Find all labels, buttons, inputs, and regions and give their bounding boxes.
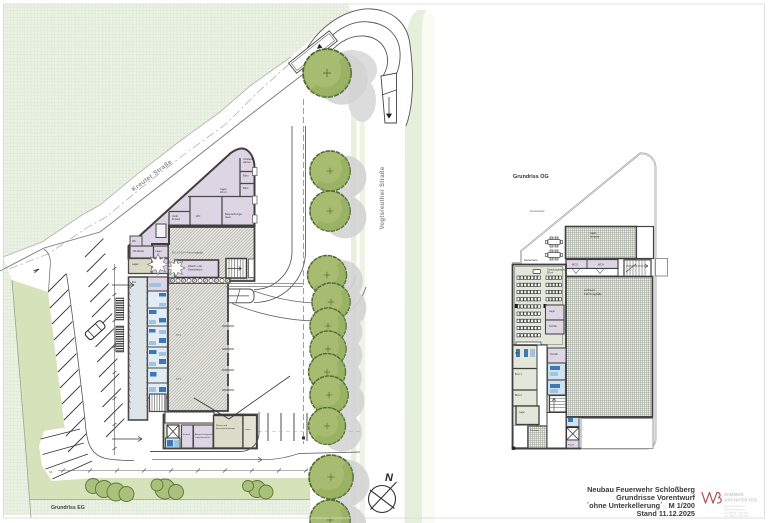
svg-text:WC: WC: [515, 353, 519, 355]
svg-text:16: 16: [49, 470, 53, 474]
svg-text:Büro 2: Büro 2: [515, 394, 522, 397]
svg-text:EG ± 0.00 = Fahrzeughalle: EG ± 0.00 = Fahrzeughalle: [172, 251, 204, 255]
svg-text:Frauen: Frauen: [172, 217, 181, 221]
svg-text:Vogtsreuther Straße: Vogtsreuther Straße: [380, 166, 386, 229]
svg-text:WC H: WC H: [598, 265, 604, 267]
svg-text:Fahrzeughalle: Fahrzeughalle: [584, 292, 602, 296]
svg-text:Stand 11.12.2025: Stand 11.12.2025: [637, 509, 695, 518]
svg-text:ST 2: ST 2: [176, 334, 182, 337]
svg-text:ST 3: ST 3: [176, 378, 182, 381]
svg-text:Lager: Lager: [245, 428, 251, 431]
svg-text:Tel. 08031 / 234 567: Tel. 08031 / 234 567: [724, 511, 749, 515]
svg-text:Lager: Lager: [519, 411, 525, 414]
svg-text:Büro 1: Büro 1: [515, 373, 522, 376]
svg-text:ST 1: ST 1: [176, 308, 182, 311]
svg-text:Büro: Büro: [243, 174, 249, 178]
svg-text:Besucherfahrzeuge: Besucherfahrzeuge: [216, 427, 236, 430]
svg-text:Sonnenschutz: Sonnenschutz: [530, 210, 545, 213]
svg-text:Herren: Herren: [243, 160, 251, 164]
svg-text:Gartenstrasse 24: Gartenstrasse 24: [724, 504, 745, 508]
svg-text:WC: WC: [196, 214, 200, 218]
svg-text:Lager: Lager: [549, 310, 555, 313]
svg-text:Logistikzentrum: Logistikzentrum: [195, 436, 210, 439]
svg-text:Desinfektion: Desinfektion: [188, 268, 203, 272]
svg-text:Flur: Flur: [132, 281, 136, 284]
svg-text:Technik: Technik: [183, 434, 191, 436]
svg-text:95 m²: 95 m²: [547, 272, 553, 275]
svg-text:WC D: WC D: [572, 265, 578, 267]
svg-text:WC: WC: [132, 240, 136, 243]
svg-text:Technik: Technik: [549, 326, 558, 328]
svg-text:Dachterrasse: Dachterrasse: [524, 259, 538, 262]
svg-text:Wasch- und: Wasch- und: [188, 264, 202, 268]
svg-text:ARCHITEKTEN: ARCHITEKTEN: [724, 498, 758, 503]
svg-text:Florian und: Florian und: [216, 424, 228, 427]
svg-text:Lager: Lager: [156, 250, 162, 253]
svg-text:Werkstatt: Werkstatt: [133, 249, 144, 253]
svg-text:raum: raum: [225, 215, 231, 219]
svg-text:Lager: Lager: [132, 262, 139, 266]
svg-text:Grundriss OG: Grundriss OG: [513, 174, 549, 180]
svg-text:WIMMER: WIMMER: [724, 492, 744, 497]
svg-text:Atemschutzgeräte-: Atemschutzgeräte-: [195, 433, 214, 436]
svg-text:83024 Rosenheim: 83024 Rosenheim: [724, 507, 747, 511]
svg-text:Technik: Technik: [550, 354, 559, 356]
svg-text:Dachterr.: Dachterr.: [530, 429, 539, 432]
svg-text:N: N: [385, 472, 394, 484]
svg-text:Flucht: Flucht: [568, 444, 574, 447]
svg-text:Grundriss EG: Grundriss EG: [51, 505, 85, 511]
svg-text:22 m²: 22 m²: [220, 190, 227, 194]
svg-text:Büro: Büro: [243, 186, 249, 190]
svg-text:Dach-: Dach-: [590, 231, 597, 235]
svg-text:terrasse: terrasse: [590, 235, 600, 239]
